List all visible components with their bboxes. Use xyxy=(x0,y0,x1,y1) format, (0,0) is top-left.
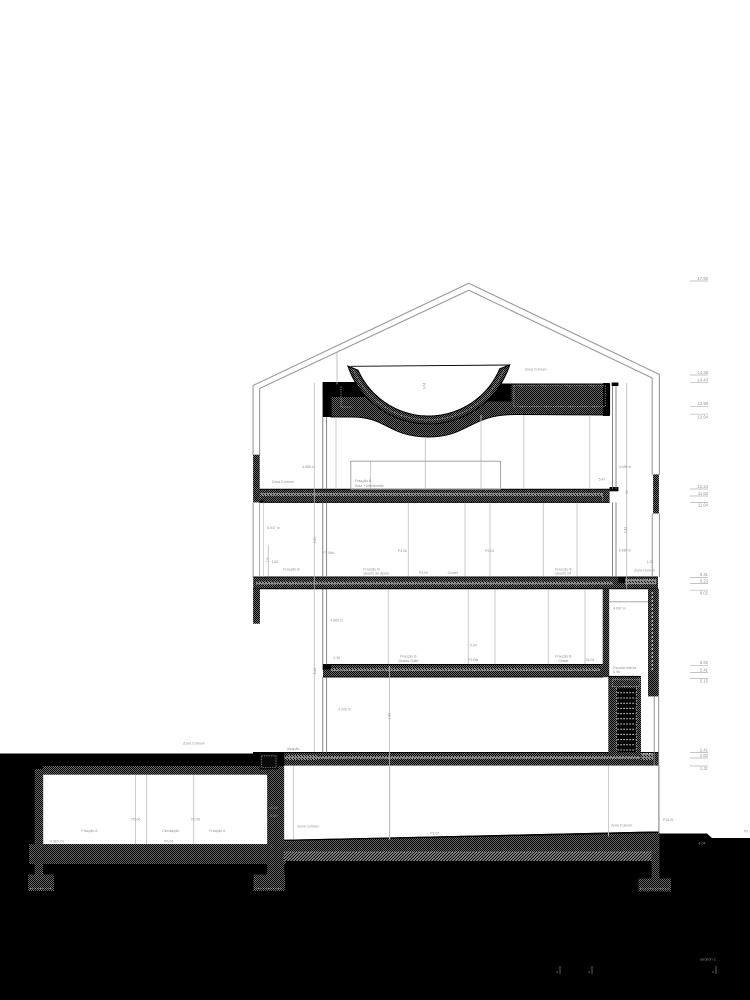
svg-text:5.41: 5.41 xyxy=(700,667,709,672)
svg-text:5.15: 5.15 xyxy=(700,679,709,684)
svg-text:P0.06: P0.06 xyxy=(131,818,140,822)
svg-text:8.02: 8.02 xyxy=(700,590,709,595)
svg-text:Zona Comum: Zona Comum xyxy=(297,825,318,829)
svg-text:8.41: 8.41 xyxy=(700,572,709,577)
svg-text:0.96: 0.96 xyxy=(613,670,620,674)
svg-text:P3.06a: P3.06a xyxy=(323,551,334,555)
svg-text:2.42: 2.42 xyxy=(388,713,392,720)
svg-text:Quarto Suite: Quarto Suite xyxy=(398,659,418,663)
svg-text:Zona Comum: Zona Comum xyxy=(272,480,294,484)
svg-text:5.92: 5.92 xyxy=(700,660,709,665)
svg-text:P0.4: P0.4 xyxy=(744,830,750,834)
svg-text:P1.02: P1.02 xyxy=(430,832,439,836)
svg-text:Fracção A: Fracção A xyxy=(209,829,226,833)
svg-text:4.037 m: 4.037 m xyxy=(613,607,625,611)
svg-text:1.60: 1.60 xyxy=(272,560,279,564)
svg-text:6.685 m: 6.685 m xyxy=(619,549,631,553)
svg-text:2.41: 2.41 xyxy=(700,747,709,752)
svg-text:4.685 m: 4.685 m xyxy=(302,465,314,469)
svg-text:11.64: 11.64 xyxy=(698,503,709,508)
svg-text:Sala + kitchenette: Sala + kitchenette xyxy=(355,484,384,488)
svg-text:P16.01: P16.01 xyxy=(663,818,674,822)
svg-text:±0.00: ±0.00 xyxy=(269,806,278,810)
svg-text:P3.06: P3.06 xyxy=(398,549,407,553)
svg-text:P0.06: P0.06 xyxy=(191,818,200,822)
svg-text:13.64: 13.64 xyxy=(698,414,709,419)
svg-text:Fracção B: Fracção B xyxy=(555,655,572,659)
svg-text:2.42: 2.42 xyxy=(624,527,628,534)
svg-text:Circulação: Circulação xyxy=(162,829,179,833)
svg-text:2.42: 2.42 xyxy=(313,668,317,675)
svg-text:Quarto de Apoio: Quarto de Apoio xyxy=(363,572,389,576)
svg-text:Zona Comum: Zona Comum xyxy=(634,569,655,573)
svg-text:s: s xyxy=(556,970,558,974)
svg-text:P3.04: P3.04 xyxy=(485,549,494,553)
svg-text:P3.04: P3.04 xyxy=(419,571,428,575)
svg-text:Fracção A: Fracção A xyxy=(81,829,98,833)
svg-text:12.24: 12.24 xyxy=(698,484,709,489)
svg-text:P2.Bla: P2.Bla xyxy=(468,658,478,662)
svg-text:Zona Comum: Zona Comum xyxy=(525,367,547,371)
svg-text:Closet: Closet xyxy=(558,659,568,663)
svg-text:3.64: 3.64 xyxy=(422,383,426,390)
svg-text:4.205 m: 4.205 m xyxy=(338,708,350,712)
svg-text:s: s xyxy=(588,970,590,974)
svg-text:s: s xyxy=(712,970,714,974)
svg-text:0.30: 0.30 xyxy=(333,656,340,660)
svg-text:04.04: 04.04 xyxy=(586,658,595,662)
svg-text:11.83: 11.83 xyxy=(698,491,709,496)
svg-text:Alçapão: Alçapão xyxy=(287,747,300,751)
svg-text:0.94: 0.94 xyxy=(470,644,477,648)
svg-text:14.38: 14.38 xyxy=(698,370,709,375)
svg-text:3.20: 3.20 xyxy=(313,537,317,544)
svg-text:8.23: 8.23 xyxy=(700,578,709,583)
svg-text:4.04: 4.04 xyxy=(699,842,706,846)
svg-text:section 1: section 1 xyxy=(700,957,717,962)
svg-text:1.41: 1.41 xyxy=(700,766,709,771)
svg-text:Zona Comum: Zona Comum xyxy=(611,824,632,828)
svg-text:17.80: 17.80 xyxy=(698,276,709,281)
svg-text:P0.04: P0.04 xyxy=(164,840,173,844)
svg-text:Quarto 04: Quarto 04 xyxy=(555,572,571,576)
svg-text:Fracção B: Fracção B xyxy=(400,655,417,659)
svg-text:2.60: 2.60 xyxy=(700,753,709,758)
svg-text:13.90: 13.90 xyxy=(698,401,709,406)
svg-text:4.685 m: 4.685 m xyxy=(330,619,342,623)
svg-text:-0.587 (0): -0.587 (0) xyxy=(49,840,64,844)
svg-text:-0.587: -0.587 xyxy=(269,814,279,818)
svg-text:Zona Comum: Zona Comum xyxy=(183,742,205,746)
svg-text:1.25: 1.25 xyxy=(647,560,654,564)
svg-text:6.547 m: 6.547 m xyxy=(267,526,279,530)
svg-text:Fracção B: Fracção B xyxy=(355,479,372,483)
svg-text:Closet: Closet xyxy=(448,571,458,575)
svg-text:Fracção B: Fracção B xyxy=(283,568,300,572)
svg-text:14.43: 14.43 xyxy=(698,378,709,383)
svg-text:5.47: 5.47 xyxy=(599,478,606,482)
svg-text:1.6: 1.6 xyxy=(265,558,269,563)
svg-text:4.685 m: 4.685 m xyxy=(619,465,631,469)
svg-text:90: 90 xyxy=(625,490,629,494)
